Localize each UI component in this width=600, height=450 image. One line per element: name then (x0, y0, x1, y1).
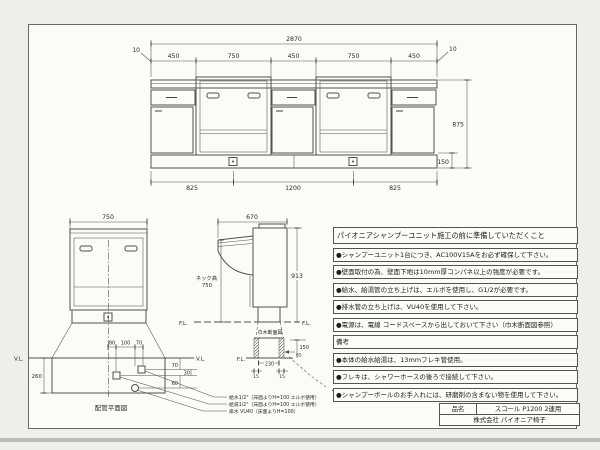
pipe-label-drain: 排水 VU40（床面よりH=100） (229, 408, 298, 415)
detail-title: 巾木断面図 (257, 329, 282, 336)
dim-side-height: 913 (291, 273, 303, 280)
dim-detail-m2: 15 (279, 374, 285, 380)
dim-bottom-3: 825 (389, 185, 401, 192)
neck-height-value: 750 (202, 283, 213, 289)
title-block-name-row: 品名 スコール P1200 2連用 (440, 404, 579, 414)
dim-height: 875 (452, 122, 464, 129)
dim-bottom-2: 1200 (285, 185, 301, 192)
dim-plan-60: 60 (172, 381, 178, 387)
dim-detail-recess: 65 (296, 353, 302, 359)
pipe-label-hot: 給湯1/2"（床面よりH=100 エルボ使用） (229, 401, 320, 408)
dim-detail-height: 150 (300, 345, 310, 351)
front-elevation-dimensions: 2870 450 750 450 750 450 10 10 (132, 36, 472, 192)
neck-height-label: ネック高 (196, 274, 217, 282)
remarks-header: 備考 (333, 335, 578, 349)
note-item-supply: ●給水、給湯管の立ち上げは、エルボを使用し、G1/2が必要です。 (333, 283, 578, 297)
note-item-power: ●シャンプーユニット1台につき、AC100V15Aをお必ず確保して下さい。 (333, 248, 578, 262)
dim-plan-depth: 260 (32, 374, 43, 380)
dim-unit-width: 750 (102, 214, 114, 221)
dim-seg-5: 450 (408, 53, 420, 60)
cabinet-left (151, 90, 195, 153)
cold-water-pipe (138, 366, 145, 373)
dim-plan-70t: 70 (136, 341, 142, 347)
counter-top (151, 80, 437, 88)
dim-base-height: 150 (437, 159, 449, 166)
drain-pipe (132, 385, 139, 392)
shampoo-unit-a (196, 77, 271, 155)
front-elevation-view: 2870 450 750 450 750 450 10 10 (132, 36, 472, 192)
drawing-page: 2870 450 750 450 750 450 10 10 (0, 0, 600, 450)
dim-plan-70r: 70 (172, 363, 178, 369)
notes-panel: パイオニアシャンプーユニット施工の前に準備していただくこと ●シャンプーユニット… (333, 227, 578, 402)
product-name-label: 品名 (440, 404, 477, 414)
fl-label-left: F.L. (179, 321, 188, 327)
dim-overall-width: 2870 (286, 36, 302, 43)
pipe-label-cold: 給水1/2"（床面よりH=100 エルボ使用） (229, 394, 320, 401)
dim-seg-3: 450 (288, 53, 300, 60)
dim-seg-4: 750 (348, 53, 360, 60)
dim-seg-2: 750 (228, 53, 240, 60)
note-item-wall: ●壁面取付の為、壁面下地は10mm厚コンパネ以上の強度が必要です。 (333, 265, 578, 279)
notes-title: パイオニアシャンプーユニット施工の前に準備していただくこと (333, 227, 578, 244)
scan-edge (0, 438, 600, 442)
note-item-drain: ●排水管の立ち上げは、VU40を使用して下さい。 (333, 300, 578, 314)
dim-offset-right: 10 (449, 46, 457, 53)
dim-plan-80: 80 (109, 341, 115, 347)
fl-label-right: F.L. (302, 321, 311, 327)
hot-water-pipe (113, 372, 120, 379)
shampoo-bowl-profile (218, 236, 253, 307)
fl-label-detail: F.L. (237, 357, 245, 363)
company-name: 株式会社 パイオニア椅子 (440, 414, 579, 425)
remark-item-hose: ●フレキは、シャワーホースの後ろで接続して下さい。 (333, 370, 578, 384)
title-block: 品名 スコール P1200 2連用 株式会社 パイオニア椅子 (439, 403, 580, 426)
cabinet-right (392, 90, 436, 153)
toe-kick-base (151, 155, 437, 168)
dim-bottom-1: 825 (186, 185, 198, 192)
piping-plan-title: 配管平面図 (95, 403, 128, 412)
dim-side-width: 670 (246, 214, 258, 221)
shampoo-unit-b (316, 77, 391, 155)
unit-front-view: 750 V.L. V.L. 260 (14, 214, 320, 415)
dim-seg-1: 450 (168, 53, 180, 60)
product-name-value: スコール P1200 2連用 (477, 404, 579, 414)
vl-label-left: V.L. (14, 357, 24, 363)
note-item-cord: ●電源は、電線 コードスペースから出しておいて下さい（巾木断面図参照） (333, 318, 578, 332)
remark-item-flex: ●本体の給水給湯は、13mmフレキ管使用。 (333, 353, 578, 367)
dim-detail-width: 230 (265, 362, 274, 368)
dim-offset-left: 10 (132, 47, 140, 54)
vl-label-right: V.L. (196, 357, 206, 363)
dim-plan-30: 30 (184, 371, 190, 377)
piping-plan-view: V.L. V.L. 260 80 100 70 (14, 341, 320, 416)
dim-plan-100: 100 (121, 341, 131, 347)
cabinet-center (272, 90, 315, 153)
dim-detail-m1: 15 (253, 374, 259, 380)
remark-item-bowl: ●シャンプーボールのお手入れには、研磨剤の含まない物を使用して下さい。 (333, 388, 578, 402)
